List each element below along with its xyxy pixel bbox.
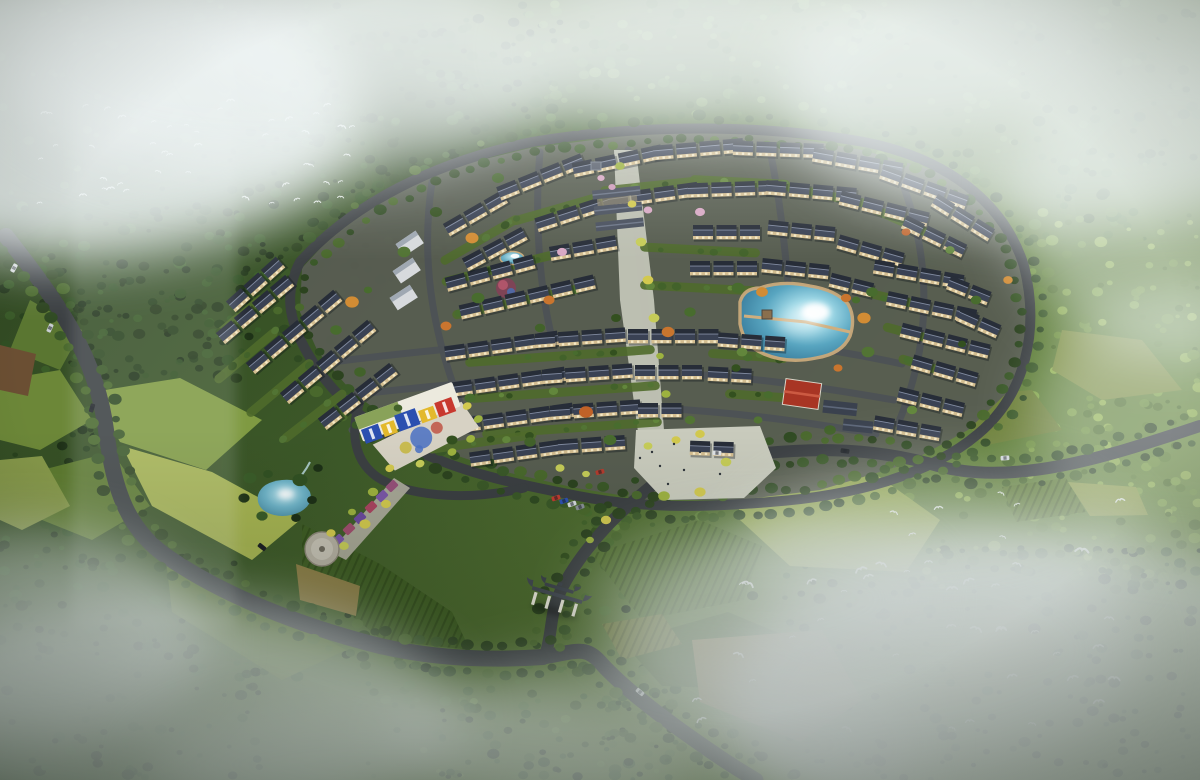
fog-overlay — [0, 0, 1200, 780]
vignette — [0, 0, 1200, 780]
rendering-canvas — [0, 0, 1200, 780]
aerial-site-rendering: Aerial bird's-eye rendering of a mountai… — [0, 0, 1200, 780]
